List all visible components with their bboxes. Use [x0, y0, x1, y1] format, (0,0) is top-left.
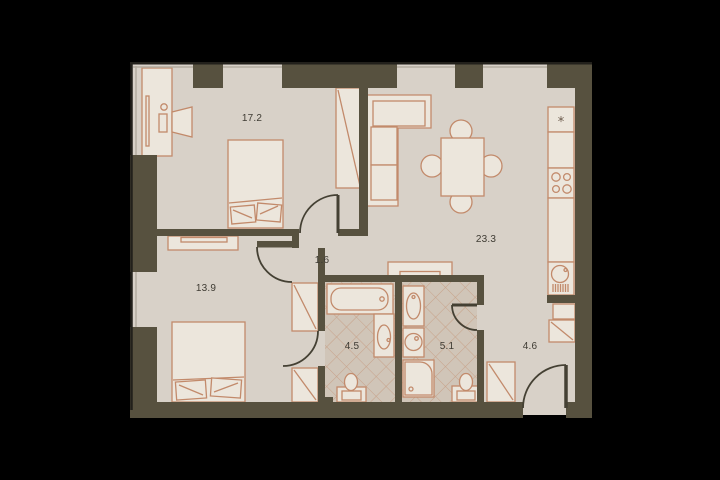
bed-double [172, 322, 245, 402]
wall-interior [292, 236, 299, 248]
faucet-icon [412, 296, 415, 299]
wall-interior [318, 366, 325, 402]
entrance-threshold [523, 402, 566, 415]
kitchen-counter [548, 198, 574, 262]
pillow [210, 378, 241, 398]
bathtub [327, 284, 393, 314]
monitor-icon [146, 96, 149, 146]
vanity-sink [403, 286, 424, 326]
wall-pier [130, 155, 157, 272]
vanity-sink [374, 314, 394, 357]
hall-cabinet [549, 320, 575, 342]
drainer-icon [553, 284, 568, 292]
wall-interior [395, 282, 402, 402]
wall-exterior-bottom [566, 402, 592, 418]
wall-interior [322, 397, 333, 407]
pillow [175, 380, 206, 400]
faucet-icon [387, 339, 390, 342]
fridge-symbol: * [558, 115, 565, 130]
dining-table [441, 138, 484, 196]
shower [403, 360, 434, 397]
wall-pier [193, 62, 223, 88]
wall-interior [477, 282, 484, 305]
tv-stand [168, 236, 238, 250]
dining-chair [421, 155, 443, 177]
room-label-bathroom: 5.1 [440, 341, 455, 352]
cooktop [548, 168, 574, 198]
wall-interior [133, 229, 299, 236]
wall-interior [359, 66, 368, 236]
wall-pier [282, 62, 397, 88]
pillow [230, 205, 255, 224]
wall-interior [318, 275, 484, 282]
tv-icon [181, 238, 227, 243]
drain-icon [409, 387, 413, 391]
wall-interior [477, 330, 484, 402]
kitchen-run [548, 107, 574, 295]
wardrobe [487, 362, 515, 402]
kitchen-sink-washer [548, 262, 574, 295]
wall-pier [130, 327, 157, 412]
sofa-cushion [371, 127, 397, 165]
floor-plan-svg: 17.2 23.3 1.6 13.9 4.5 5.1 4.6 * [0, 0, 720, 480]
room-label-bathroom-ensuite: 4.5 [345, 341, 360, 352]
room-label-corridor: 1.6 [315, 255, 330, 266]
hall-cabinet [553, 304, 575, 319]
room-label-living-kitchen: 23.3 [476, 234, 497, 245]
wardrobe [292, 368, 318, 402]
bed-double [228, 140, 283, 228]
room-label-bedroom-2: 13.9 [196, 283, 217, 294]
wall-pier [455, 62, 483, 88]
desk-item [159, 114, 167, 132]
dial-icon [415, 337, 419, 341]
room-label-bedroom-1: 17.2 [242, 113, 263, 124]
wall-interior [547, 295, 592, 303]
floor-plan-canvas: 17.2 23.3 1.6 13.9 4.5 5.1 4.6 * [0, 0, 720, 480]
desk [142, 68, 172, 156]
desk-lamp-icon [161, 104, 167, 110]
room-label-hallway: 4.6 [523, 341, 538, 352]
wall-exterior-right [575, 62, 592, 418]
wardrobe [336, 88, 362, 188]
sofa-cushion [371, 165, 397, 200]
wardrobe [292, 283, 318, 331]
kitchen-cabinet [548, 132, 574, 168]
desk-chair [172, 107, 192, 137]
pillow [256, 203, 281, 222]
drain-icon [380, 297, 384, 301]
washing-machine [403, 328, 424, 357]
sofa-cushion [373, 101, 425, 126]
